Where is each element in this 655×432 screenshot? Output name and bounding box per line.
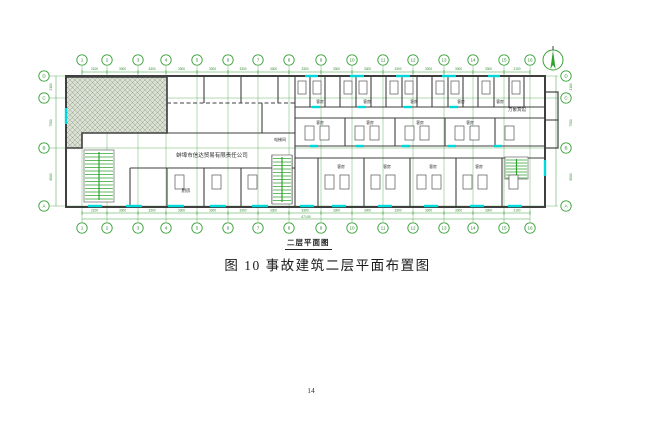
- floor-plan-drawing: 2100210033003300330033003300330033003300…: [0, 0, 655, 250]
- svg-text:3300: 3300: [209, 209, 216, 213]
- svg-text:6000: 6000: [49, 173, 53, 180]
- page-number: 14: [0, 386, 622, 395]
- svg-text:2100: 2100: [513, 67, 520, 71]
- svg-text:3300: 3300: [333, 67, 340, 71]
- svg-text:3: 3: [137, 226, 140, 231]
- bed-symbols: [175, 81, 520, 189]
- svg-text:3300: 3300: [178, 67, 185, 71]
- document-page: 2100210033003300330033003300330033003300…: [0, 0, 655, 432]
- svg-text:3300: 3300: [270, 67, 277, 71]
- svg-text:3300: 3300: [394, 209, 401, 213]
- svg-text:2100: 2100: [569, 83, 573, 90]
- svg-text:客房: 客房: [337, 164, 345, 169]
- svg-text:6000: 6000: [569, 173, 573, 180]
- svg-text:客房: 客房: [429, 164, 437, 169]
- svg-text:6: 6: [227, 226, 230, 231]
- svg-text:3300: 3300: [239, 209, 246, 213]
- svg-text:14: 14: [470, 58, 476, 63]
- svg-text:2100: 2100: [49, 83, 53, 90]
- figure-caption: 图 10 事故建筑二层平面布置图: [0, 254, 655, 274]
- svg-text:12: 12: [410, 226, 416, 231]
- svg-text:15: 15: [501, 58, 507, 63]
- svg-text:5: 5: [196, 58, 199, 63]
- svg-text:7500: 7500: [49, 119, 53, 126]
- svg-text:5: 5: [196, 226, 199, 231]
- svg-text:10: 10: [349, 226, 355, 231]
- svg-text:4: 4: [165, 226, 168, 231]
- svg-text:2: 2: [106, 58, 109, 63]
- svg-text:客房: 客房: [475, 164, 483, 169]
- svg-text:客房: 客房: [457, 99, 465, 104]
- svg-text:3300: 3300: [239, 67, 246, 71]
- svg-text:2100: 2100: [91, 209, 98, 213]
- svg-text:厨房: 厨房: [182, 187, 191, 194]
- svg-text:客房: 客房: [316, 99, 324, 104]
- svg-text:客房: 客房: [416, 120, 424, 125]
- svg-text:13: 13: [441, 58, 447, 63]
- svg-text:13: 13: [441, 226, 447, 231]
- svg-text:15: 15: [501, 226, 507, 231]
- svg-text:1: 1: [81, 58, 84, 63]
- svg-text:3300: 3300: [148, 67, 155, 71]
- svg-text:客房: 客房: [366, 120, 374, 125]
- svg-text:3300: 3300: [209, 67, 216, 71]
- svg-text:B: B: [42, 146, 45, 151]
- svg-text:4: 4: [165, 58, 168, 63]
- svg-text:3300: 3300: [394, 67, 401, 71]
- svg-text:7: 7: [257, 58, 260, 63]
- svg-text:电梯间: 电梯间: [274, 136, 286, 142]
- svg-text:11: 11: [381, 226, 386, 231]
- svg-text:12: 12: [410, 58, 416, 63]
- svg-text:11: 11: [381, 58, 386, 63]
- svg-text:3300: 3300: [178, 209, 185, 213]
- svg-text:8: 8: [288, 226, 291, 231]
- svg-text:6: 6: [227, 58, 230, 63]
- svg-text:万象宾馆: 万象宾馆: [508, 106, 526, 113]
- north-arrow-icon: [543, 46, 563, 70]
- svg-text:1: 1: [81, 226, 84, 231]
- svg-text:3300: 3300: [455, 209, 462, 213]
- hatched-roof-area: [66, 77, 167, 148]
- svg-text:3300: 3300: [425, 67, 432, 71]
- svg-text:14: 14: [470, 226, 476, 231]
- svg-text:16: 16: [527, 58, 533, 63]
- svg-text:3300: 3300: [119, 67, 126, 71]
- svg-text:3300: 3300: [425, 209, 432, 213]
- svg-text:16: 16: [527, 226, 533, 231]
- svg-text:2100: 2100: [91, 67, 98, 71]
- svg-text:B: B: [564, 146, 567, 151]
- svg-text:3300: 3300: [485, 209, 492, 213]
- svg-text:客房: 客房: [496, 99, 504, 104]
- svg-text:9: 9: [320, 226, 323, 231]
- svg-text:3300: 3300: [485, 67, 492, 71]
- svg-text:3300: 3300: [119, 209, 126, 213]
- svg-text:蚌埠市信达贸易有限责任公司: 蚌埠市信达贸易有限责任公司: [176, 151, 248, 159]
- svg-text:8: 8: [288, 58, 291, 63]
- svg-text:7500: 7500: [569, 119, 573, 126]
- svg-text:3300: 3300: [301, 67, 308, 71]
- svg-text:9: 9: [320, 58, 323, 63]
- svg-text:3: 3: [137, 58, 140, 63]
- svg-text:客房: 客房: [466, 120, 474, 125]
- svg-text:3300: 3300: [364, 209, 371, 213]
- svg-text:客房: 客房: [316, 120, 324, 125]
- svg-text:10: 10: [349, 58, 355, 63]
- svg-text:3300: 3300: [333, 209, 340, 213]
- drawing-subtitle: 二层平面图: [285, 237, 332, 250]
- svg-text:47100: 47100: [301, 215, 311, 219]
- svg-text:客房: 客房: [363, 99, 371, 104]
- svg-text:3300: 3300: [270, 209, 277, 213]
- svg-text:3300: 3300: [148, 209, 155, 213]
- svg-text:2: 2: [106, 226, 109, 231]
- svg-text:7: 7: [257, 226, 260, 231]
- svg-text:3300: 3300: [455, 67, 462, 71]
- svg-text:3300: 3300: [301, 209, 308, 213]
- svg-text:客房: 客房: [410, 99, 418, 104]
- svg-text:3300: 3300: [364, 67, 371, 71]
- svg-text:2100: 2100: [513, 209, 520, 213]
- svg-text:客房: 客房: [383, 164, 391, 169]
